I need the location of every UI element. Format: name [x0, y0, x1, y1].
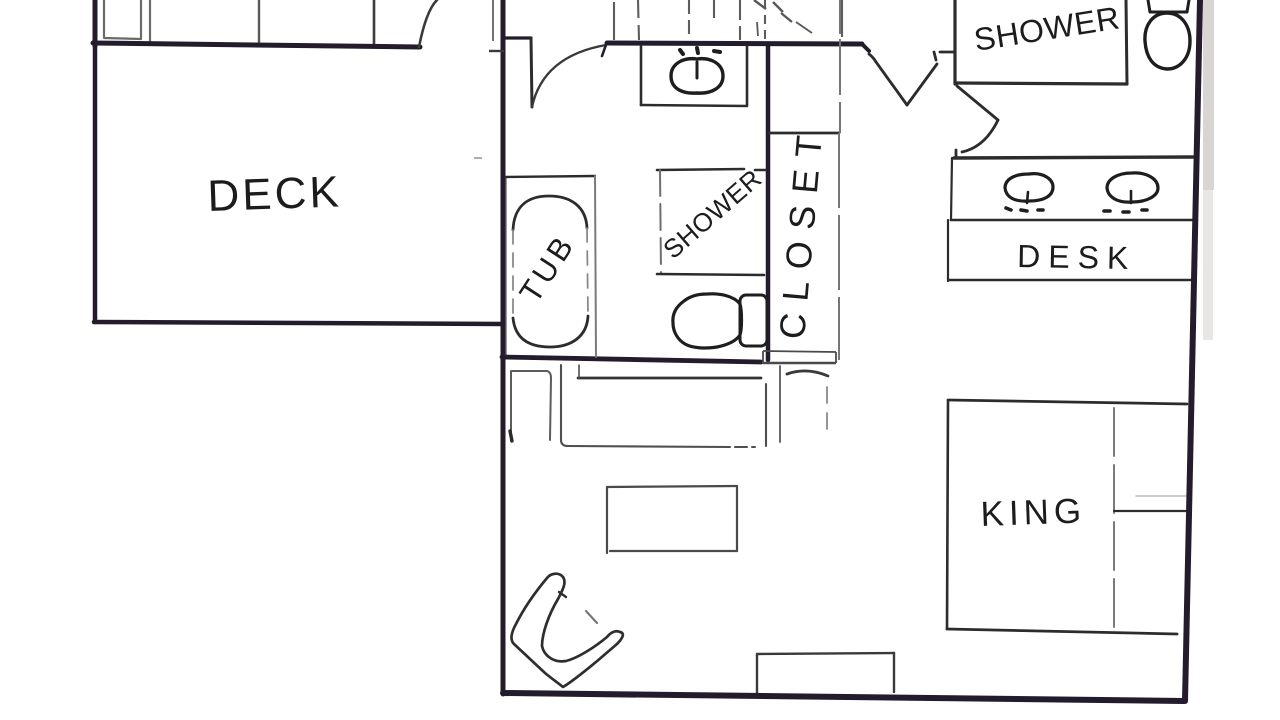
svg-text:DESK: DESK	[1017, 238, 1137, 276]
svg-text:KING: KING	[980, 491, 1087, 534]
svg-text:DECK: DECK	[207, 167, 343, 221]
